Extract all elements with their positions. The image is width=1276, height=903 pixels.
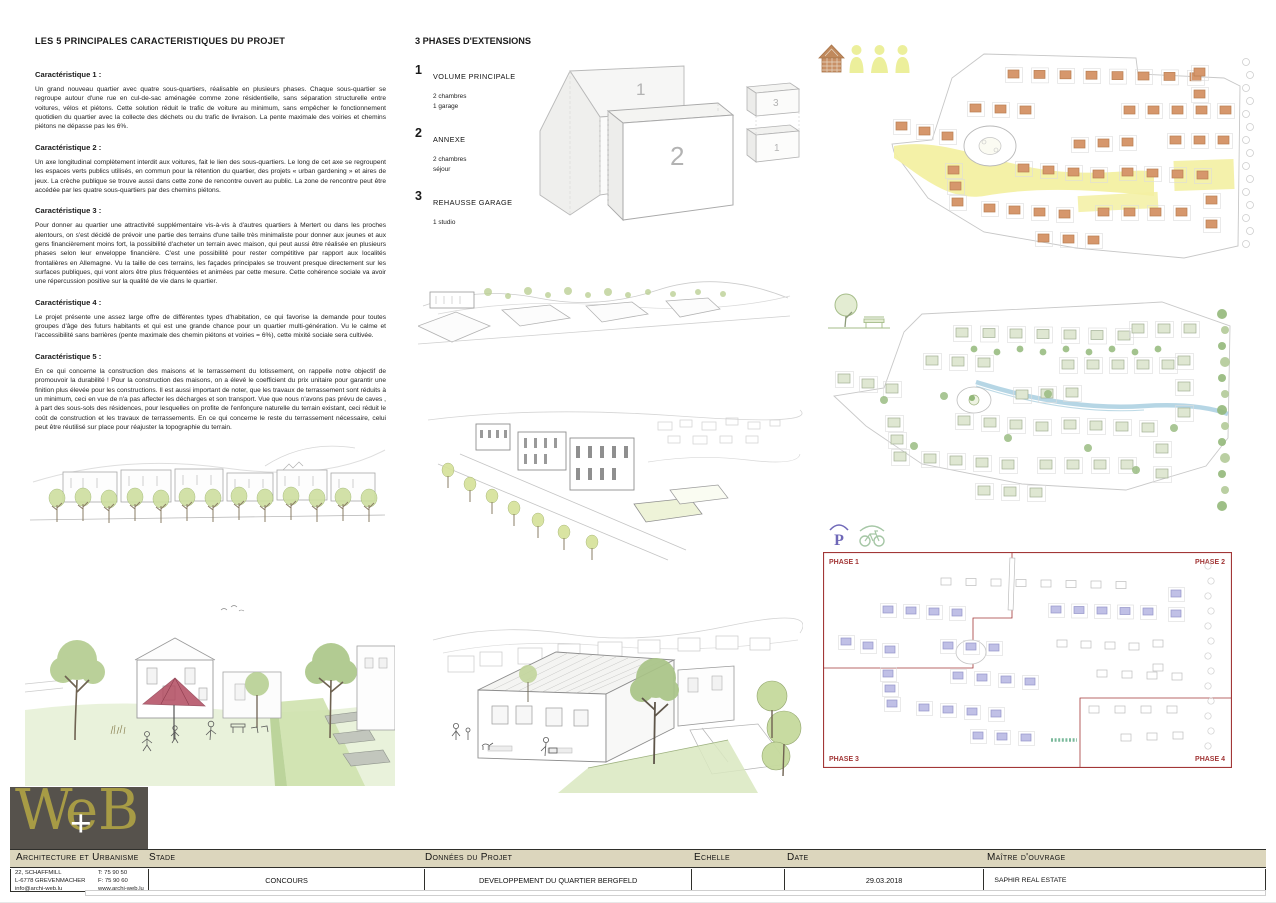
sketch-street-scene	[428, 578, 803, 793]
svg-text:P: P	[834, 532, 844, 548]
titleblock-header-band: Architecture et Urbanisme Stade Données …	[10, 849, 1266, 868]
phase-2-label: ANNEXE	[433, 135, 465, 144]
phase-1-area-label: PHASE 1	[829, 559, 859, 566]
bicycle-icon	[856, 523, 888, 548]
site-plan-landscape	[826, 298, 1236, 543]
axon-label-garage-base: 1	[774, 143, 780, 154]
sketch-aerial-blocks	[418, 392, 803, 572]
company-address: 22, SCHAFFMILL L-6778 GREVENMACHER info@…	[15, 870, 85, 894]
axon-label-garage-top: 3	[773, 98, 779, 109]
extension-axonometric-diagram: 1 2 3 1	[532, 55, 800, 235]
phase-2-area-label: PHASE 2	[1195, 559, 1225, 566]
presentation-board: LES 5 PRINCIPALES CARACTERISTIQUES DU PR…	[0, 0, 1276, 903]
characteristic-4: Caractéristique 4 : Le projet présente u…	[35, 298, 386, 341]
date-value: 29.03.2018	[785, 869, 985, 891]
company-address-cell: 22, SCHAFFMILL L-6778 GREVENMACHER info@…	[11, 869, 149, 891]
house-icon	[818, 44, 845, 74]
axon-label-back-volume: 1	[636, 80, 645, 99]
phase-3-number: 3	[415, 189, 422, 203]
stade-label: Stade	[149, 852, 175, 863]
site-plan-phasing: PHASE 1 PHASE 2 PHASE 3 PHASE 4	[823, 552, 1232, 768]
phase-1-label: VOLUME PRINCIPALE	[433, 72, 516, 81]
person-icon	[870, 44, 889, 74]
phase-4-area-label: PHASE 4	[1195, 756, 1225, 763]
date-label: Date	[787, 852, 809, 863]
characteristic-4-heading: Caractéristique 4 :	[35, 298, 386, 307]
characteristic-3: Caractéristique 3 : Pour donner au quart…	[35, 206, 386, 287]
donnees-value: DEVELOPPEMENT DU QUARTIER BERGFELD	[425, 869, 692, 891]
site-plan-masterplan	[888, 48, 1268, 270]
phase-2-number: 2	[415, 126, 422, 140]
sketch-aerial-panorama	[418, 248, 793, 353]
maitre-value: SAPHIR REAL ESTATE	[984, 869, 1265, 891]
web-plus-logo: We + B	[10, 787, 148, 849]
characteristic-1-body: Un grand nouveau quartier avec quatre so…	[35, 85, 386, 132]
phase-3-area-label: PHASE 3	[829, 756, 859, 763]
bottom-scale-strip	[85, 890, 1266, 896]
logo-plus-sign: +	[70, 803, 92, 845]
phases-title: 3 PHASES D'EXTENSIONS	[415, 36, 595, 46]
phase-1-number: 1	[415, 63, 422, 77]
parking-icon: P	[828, 521, 850, 548]
characteristics-column: LES 5 PRINCIPALES CARACTERISTIQUES DU PR…	[35, 36, 386, 432]
echelle-value	[692, 869, 785, 891]
axon-label-front-volume: 2	[670, 141, 684, 171]
characteristic-3-heading: Caractéristique 3 :	[35, 206, 386, 215]
phase-3-label: REHAUSSE GARAGE	[433, 198, 512, 207]
echelle-label: Echelle	[694, 852, 730, 863]
stade-value: CONCOURS	[149, 869, 426, 891]
company-label: Architecture et Urbanisme	[16, 852, 139, 863]
maitre-label: Maître d'ouvrage	[987, 852, 1066, 863]
person-icon	[848, 44, 865, 74]
donnees-label: Données du Projet	[425, 852, 512, 863]
page-title: LES 5 PRINCIPALES CARACTERISTIQUES DU PR…	[35, 36, 386, 46]
characteristic-4-body: Le projet présente une assez large offre…	[35, 313, 386, 341]
characteristic-2: Caractéristique 2 : Un axe longitudinal …	[35, 143, 386, 195]
characteristic-1: Caractéristique 1 : Un grand nouveau qua…	[35, 70, 386, 132]
characteristic-2-body: Un axe longitudinal complètement interdi…	[35, 158, 386, 195]
sketch-playground-courtyard	[25, 588, 395, 786]
logo-b-text: B	[98, 787, 139, 843]
characteristic-5-heading: Caractéristique 5 :	[35, 352, 386, 361]
sketch-street-elevation	[25, 420, 390, 545]
characteristic-1-heading: Caractéristique 1 :	[35, 70, 386, 79]
characteristic-3-body: Pour donner au quartier une attractivité…	[35, 221, 386, 287]
titleblock-values-row: 22, SCHAFFMILL L-6778 GREVENMACHER info@…	[10, 869, 1266, 892]
characteristic-2-heading: Caractéristique 2 :	[35, 143, 386, 152]
